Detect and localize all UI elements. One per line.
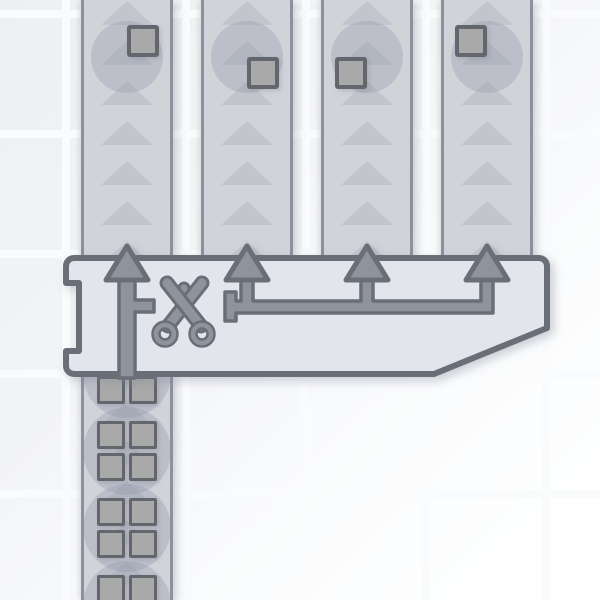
game-viewport (0, 0, 600, 600)
quad-cutter-building[interactable] (0, 0, 600, 600)
